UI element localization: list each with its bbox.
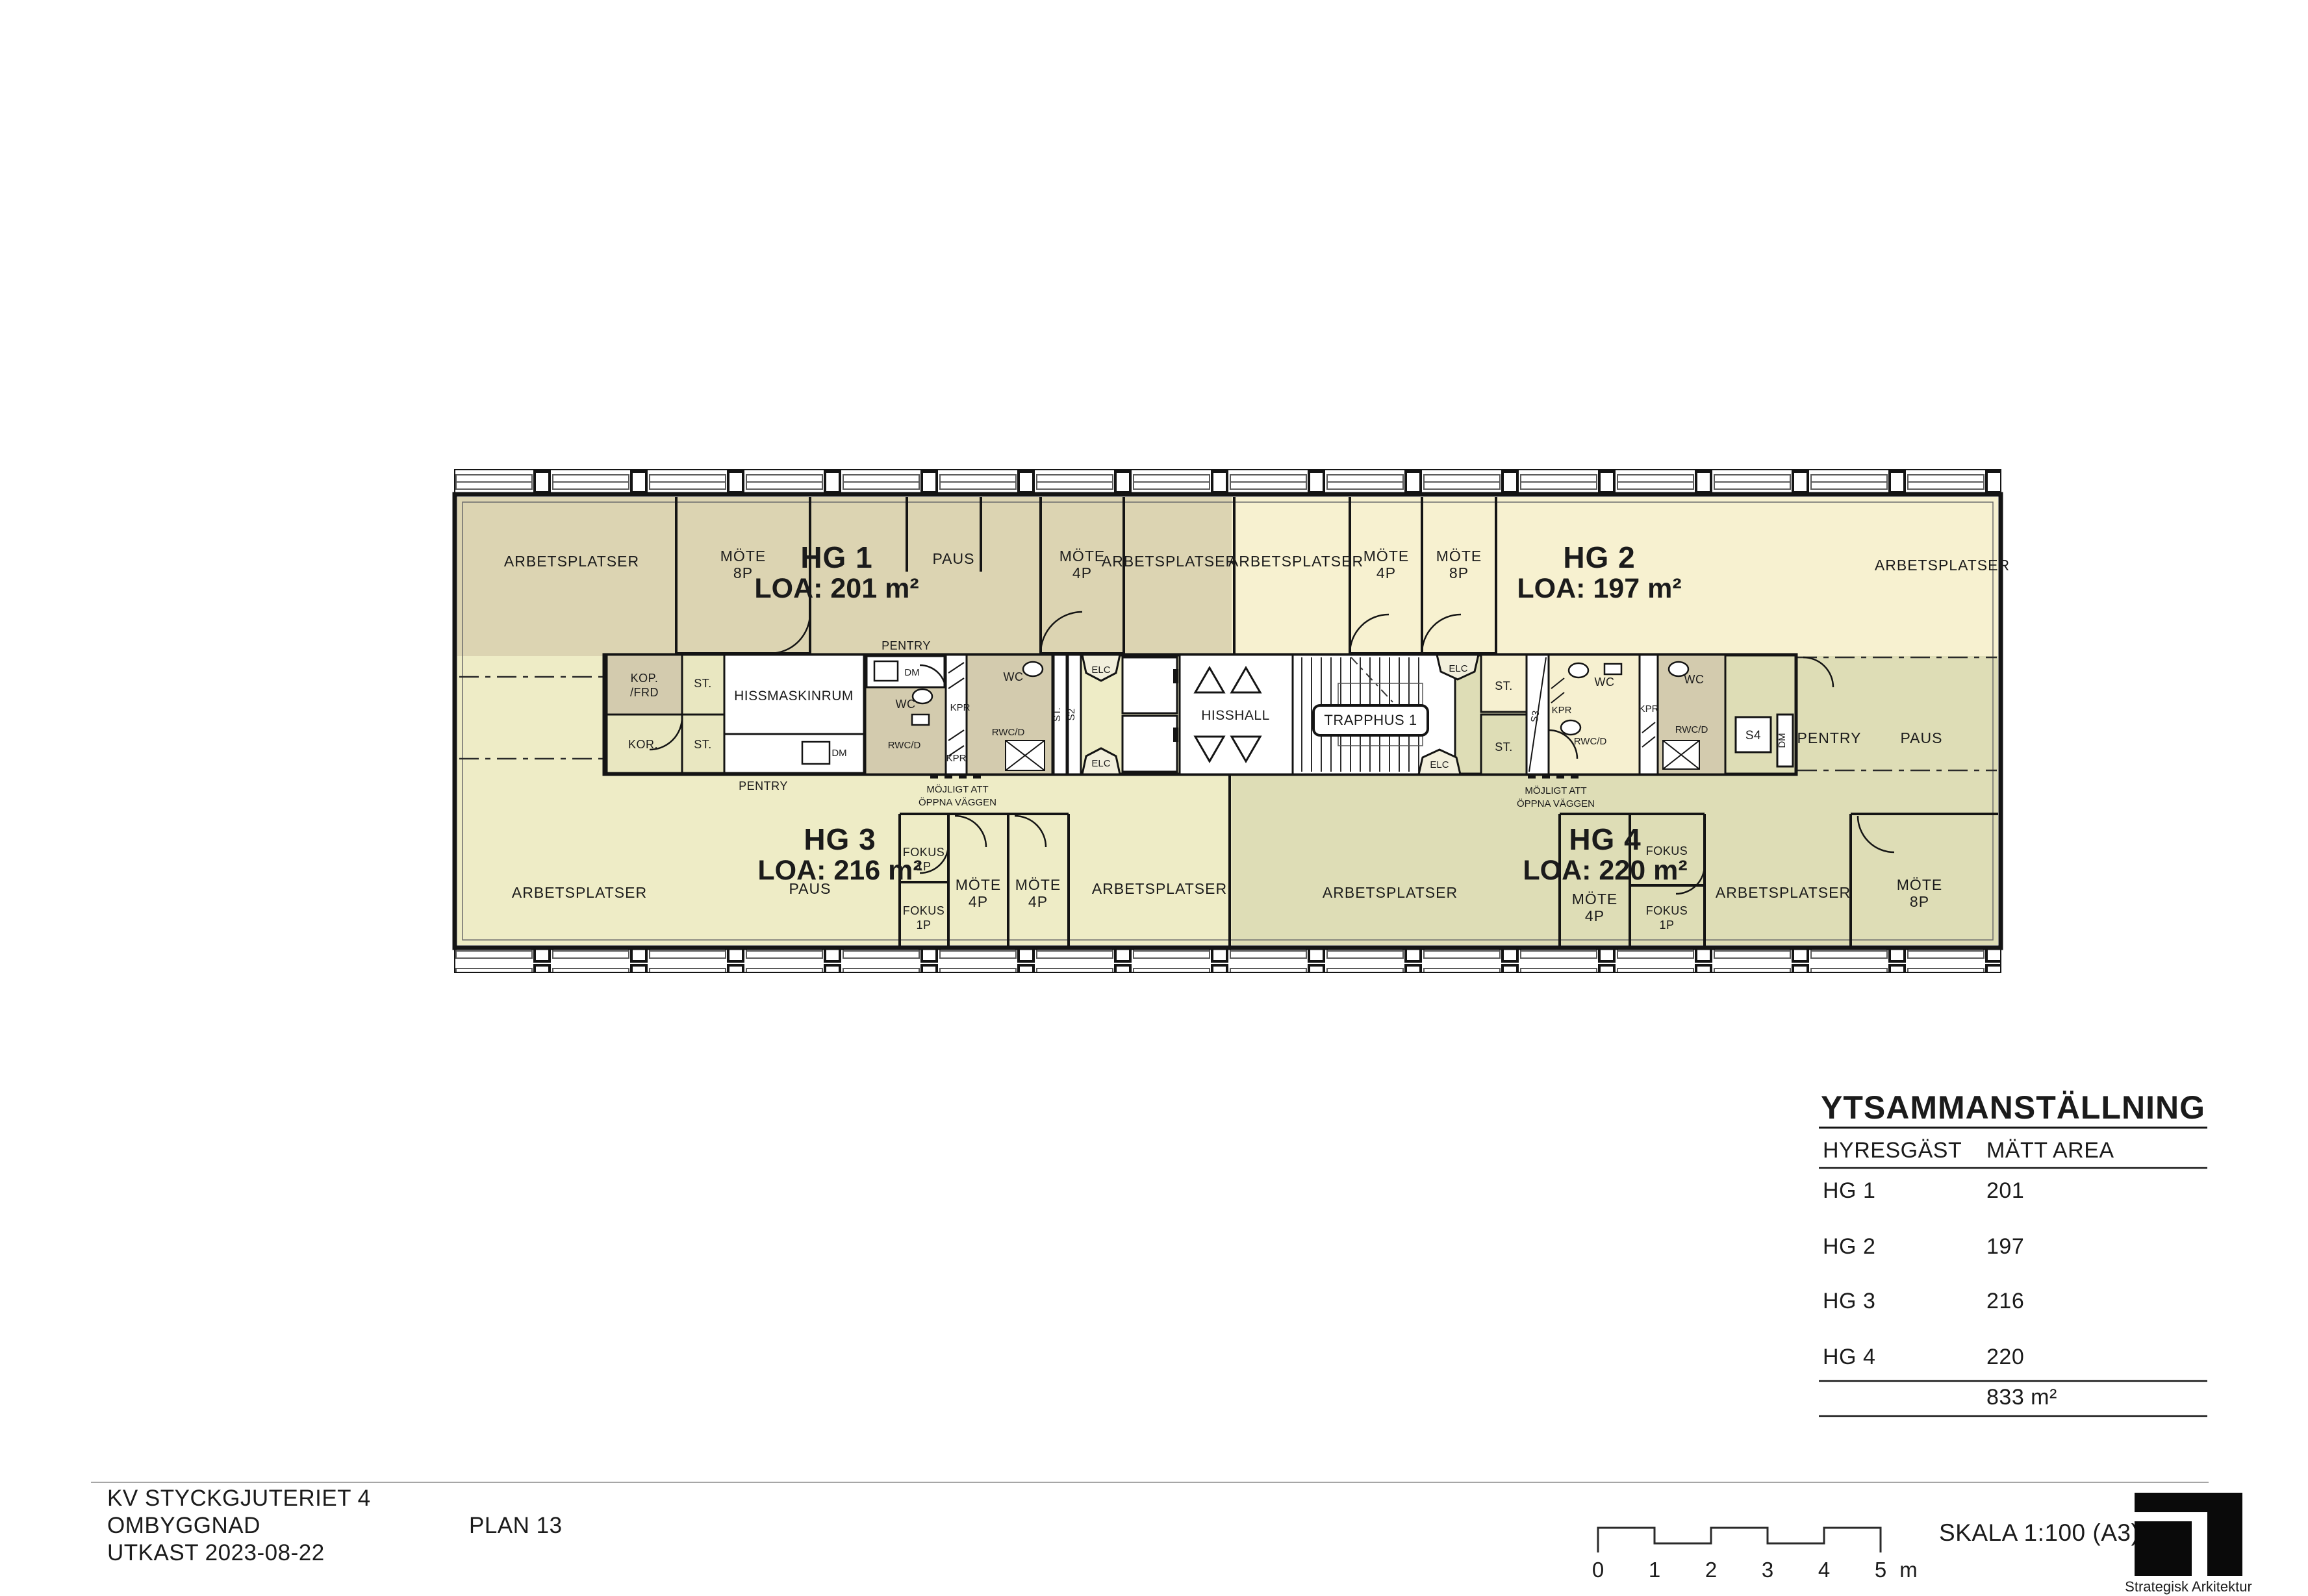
- room-label-arbetsplatser-hg3-left: ARBETSPLATSER: [512, 884, 647, 901]
- room-label-mote4-hg1-sub: 4P: [1072, 564, 1092, 581]
- room-label-arbetsplatser-hg4-left: ARBETSPLATSER: [1323, 884, 1458, 901]
- room-label-trapphus: TRAPPHUS 1: [1324, 712, 1417, 728]
- room-label-mote4-hg4: MÖTE: [1572, 891, 1617, 907]
- floor-plan-drawing: ARBETSPLATSER MÖTE 8P HG 1 LOA: 201 m² P…: [0, 0, 2308, 1596]
- scale-unit: m: [1899, 1558, 1918, 1582]
- scale-tick-4: 4: [1818, 1558, 1830, 1582]
- room-label-fokus2-hg4: FOKUS: [1646, 904, 1688, 917]
- room-label-wc-a: WC: [896, 698, 916, 711]
- tenant-loa-hg1: LOA: 201 m²: [754, 573, 919, 604]
- area-summary-table: YTSAMMANSTÄLLNING HYRESGÄST MÄTT AREA HG…: [1819, 1089, 2207, 1416]
- room-label-st-left-top: ST.: [694, 677, 712, 690]
- logo-strategisk-arkitektur: Strategisk Arkitektur: [2125, 1493, 2252, 1595]
- room-label-pentry-left: PENTRY: [739, 779, 788, 792]
- table-total-area: 833 m²: [1986, 1385, 2057, 1410]
- room-label-kor: KOR.: [628, 738, 658, 751]
- room-label-mote8-hg2: MÖTE: [1436, 548, 1482, 564]
- shaft-label-s4: S4: [1745, 729, 1761, 742]
- tenant-loa-hg4: LOA: 220 m²: [1523, 855, 1687, 886]
- room-label-paus-right: PAUS: [1901, 729, 1943, 746]
- room-label-mote8-hg4-sub: 8P: [1910, 893, 1929, 910]
- tenant-label-hg1: HG 1: [800, 540, 872, 574]
- shaft-label-st: ST.: [1052, 707, 1063, 722]
- room-label-arbetsplatser-hg4-right: ARBETSPLATSER: [1716, 884, 1851, 901]
- tenant-loa-hg3: LOA: 216 m²: [757, 855, 922, 886]
- table-row-tenant: HG 4: [1823, 1345, 1875, 1369]
- room-label-elc-lb: ELC: [1091, 758, 1110, 769]
- room-label-rwcd-r1: RWC/D: [1574, 736, 1607, 747]
- room-label-rwcd-r2: RWC/D: [1675, 724, 1708, 735]
- room-label-fokus2-hg3-sub: 1P: [916, 918, 931, 931]
- room-label-wc-r2: WC: [1684, 673, 1705, 686]
- room-label-wc-r1: WC: [1595, 676, 1615, 689]
- table-row: HG 3 216: [1823, 1289, 2024, 1313]
- room-label-kpr-r1: KPR: [1552, 705, 1572, 716]
- drawing-sheet: ARBETSPLATSER MÖTE 8P HG 1 LOA: 201 m² P…: [0, 0, 2308, 1596]
- title-block: KV STYCKGJUTERIET 4 OMBYGGNAD UTKAST 202…: [91, 1482, 2252, 1595]
- room-label-pentry-top: PENTRY: [881, 639, 931, 652]
- room-label-st-left-bottom: ST.: [694, 738, 712, 751]
- room-label-kpr-a1: KPR: [950, 702, 970, 713]
- room-label-frd: /FRD: [630, 686, 659, 699]
- table-row-area: 201: [1986, 1178, 2024, 1203]
- tenant-label-hg3: HG 3: [804, 822, 876, 856]
- room-label-elc-rt: ELC: [1449, 663, 1467, 674]
- appliance-label-dm-left: DM: [831, 748, 846, 759]
- room-label-st-right-bottom: ST.: [1495, 741, 1513, 754]
- tenant-label-hg4: HG 4: [1569, 822, 1641, 856]
- table-row: HG 4 220: [1823, 1345, 2024, 1369]
- room-label-mote4-hg2: MÖTE: [1363, 548, 1409, 564]
- room-label-elc-rb: ELC: [1430, 759, 1449, 770]
- room-label-mote4a-hg3-sub: 4P: [969, 893, 988, 910]
- logo-text: Strategisk Arkitektur: [2125, 1578, 2252, 1595]
- room-label-fokus2-hg4-sub: 1P: [1659, 918, 1674, 931]
- note-openable-right-2: ÖPPNA VÄGGEN: [1517, 798, 1595, 809]
- note-openable-right-1: MÖJLIGT ATT: [1525, 785, 1586, 796]
- table-row: HG 2 197: [1823, 1234, 2024, 1259]
- project-name: KV STYCKGJUTERIET 4: [107, 1486, 371, 1511]
- room-label-mote8-hg1-sub: 8P: [733, 564, 753, 581]
- plan: ARBETSPLATSER MÖTE 8P HG 1 LOA: 201 m² P…: [455, 470, 2010, 972]
- room-label-arbetsplatser-hg1-right: ARBETSPLATSER: [1102, 553, 1237, 570]
- room-label-arbetsplatser-hg2-left: ARBETSPLATSER: [1228, 553, 1363, 570]
- room-label-elc-lt: ELC: [1091, 665, 1110, 676]
- room-label-fokus1-hg3: FOKUS: [903, 846, 945, 859]
- table-title: YTSAMMANSTÄLLNING: [1821, 1089, 2205, 1126]
- room-label-mote4-hg1: MÖTE: [1059, 548, 1105, 564]
- note-openable-left-2: ÖPPNA VÄGGEN: [919, 796, 996, 808]
- note-openable-left-1: MÖJLIGT ATT: [926, 783, 988, 795]
- project-status-date: UTKAST 2023-08-22: [107, 1540, 325, 1565]
- room-label-kop: KOP.: [631, 672, 659, 685]
- room-label-mote4-hg4-sub: 4P: [1585, 907, 1604, 924]
- room-label-rwcd-b: RWC/D: [992, 727, 1025, 738]
- table-col-area: MÄTT AREA: [1986, 1138, 2114, 1163]
- project-phase: OMBYGGNAD: [107, 1513, 260, 1538]
- room-label-mote8-hg1: MÖTE: [720, 548, 766, 564]
- room-label-pentry-right: PENTRY: [1797, 729, 1862, 746]
- table-col-tenant: HYRESGÄST: [1823, 1138, 1962, 1163]
- scale-tick-1: 1: [1649, 1558, 1660, 1582]
- room-label-fokus2-hg3: FOKUS: [903, 904, 945, 917]
- table-row-tenant: HG 3: [1823, 1289, 1875, 1313]
- room-label-hissmaskinrum: HISSMASKINRUM: [734, 689, 854, 703]
- scale-bar: 0 1 2 3 4 5 m: [1592, 1528, 1918, 1582]
- scale-tick-2: 2: [1705, 1558, 1717, 1582]
- scale-tick-3: 3: [1762, 1558, 1773, 1582]
- room-label-wc-b: WC: [1004, 670, 1024, 683]
- table-row: HG 1 201: [1823, 1178, 2024, 1203]
- room-label-arbetsplatser-hg1-left: ARBETSPLATSER: [504, 553, 639, 570]
- table-row-area: 220: [1986, 1345, 2024, 1369]
- table-row-tenant: HG 2: [1823, 1234, 1875, 1259]
- room-label-fokus1-hg3-sub: 1P: [916, 860, 931, 873]
- room-label-mote4-hg2-sub: 4P: [1376, 564, 1396, 581]
- room-label-mote4a-hg3: MÖTE: [956, 876, 1001, 893]
- room-label-fokus1-hg4: FOKUS: [1646, 844, 1688, 857]
- plan-number: PLAN 13: [469, 1513, 563, 1538]
- shaft-label-s2: S2: [1066, 709, 1077, 720]
- room-label-mote4b-hg3-sub: 4P: [1028, 893, 1048, 910]
- scale-tick-5: 5: [1875, 1558, 1886, 1582]
- room-label-paus-hg3: PAUS: [789, 880, 831, 897]
- room-label-st-right-top: ST.: [1495, 679, 1513, 692]
- room-label-kpr-a2: KPR: [946, 753, 967, 764]
- table-row-tenant: HG 1: [1823, 1178, 1875, 1203]
- room-label-hisshall: HISSHALL: [1201, 708, 1270, 723]
- room-label-rwcd-a: RWC/D: [888, 740, 921, 751]
- room-label-arbetsplatser-hg2-right: ARBETSPLATSER: [1875, 557, 2010, 574]
- scale-label: SKALA 1:100 (A3): [1939, 1519, 2139, 1546]
- facade-north: [455, 470, 2001, 494]
- tenant-loa-hg2: LOA: 197 m²: [1517, 573, 1681, 604]
- room-label-mote8-hg4: MÖTE: [1897, 876, 1942, 893]
- table-row-area: 216: [1986, 1289, 2024, 1313]
- appliance-label-dm-top: DM: [904, 667, 919, 678]
- room-label-kpr-r2: KPR: [1639, 703, 1659, 715]
- room-label-arbetsplatser-hg3-right: ARBETSPLATSER: [1092, 880, 1227, 897]
- room-label-paus-hg1: PAUS: [933, 550, 975, 567]
- shaft-label-s3: S3: [1529, 710, 1542, 724]
- table-row-area: 197: [1986, 1234, 2024, 1259]
- logo-mark-icon: [2135, 1493, 2242, 1576]
- room-label-mote4b-hg3: MÖTE: [1015, 876, 1061, 893]
- tenant-label-hg2: HG 2: [1563, 540, 1635, 574]
- room-label-mote8-hg2-sub: 8P: [1449, 564, 1469, 581]
- scale-tick-0: 0: [1592, 1558, 1604, 1582]
- appliance-label-dm-right: DM: [1777, 733, 1788, 748]
- facade-south: [455, 948, 2001, 972]
